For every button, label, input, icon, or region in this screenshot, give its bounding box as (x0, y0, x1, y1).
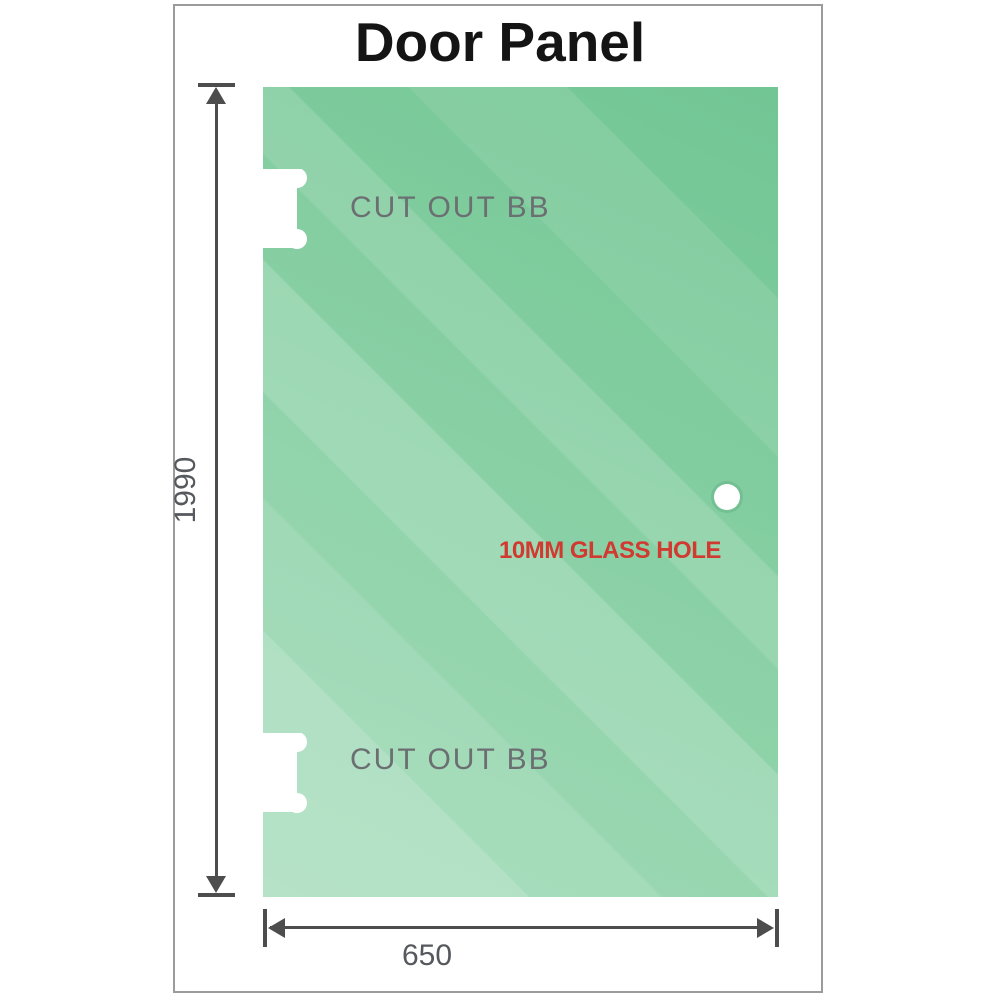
width-dimension-tick-left (263, 909, 267, 947)
arrow-up-icon (206, 87, 226, 104)
arrow-left-icon (268, 918, 285, 938)
hinge-cutout-top (263, 169, 309, 250)
cutout-label-bottom: CUT OUT BB (350, 745, 551, 775)
height-dimension-label: 1990 (171, 457, 201, 524)
width-dimension-line (270, 926, 771, 929)
glass-hole-label: 10MM GLASS HOLE (499, 538, 719, 563)
hinge-cutout-bottom (263, 733, 309, 814)
height-dimension-line (215, 98, 218, 880)
glass-hole (714, 484, 740, 510)
page-title: Door Panel (173, 12, 827, 72)
width-dimension-tick-right (775, 909, 779, 947)
arrow-down-icon (206, 876, 226, 893)
width-dimension-label: 650 (402, 941, 452, 971)
height-dimension-tick-bottom (198, 893, 235, 897)
cutout-label-top: CUT OUT BB (350, 193, 551, 223)
arrow-right-icon (757, 918, 774, 938)
